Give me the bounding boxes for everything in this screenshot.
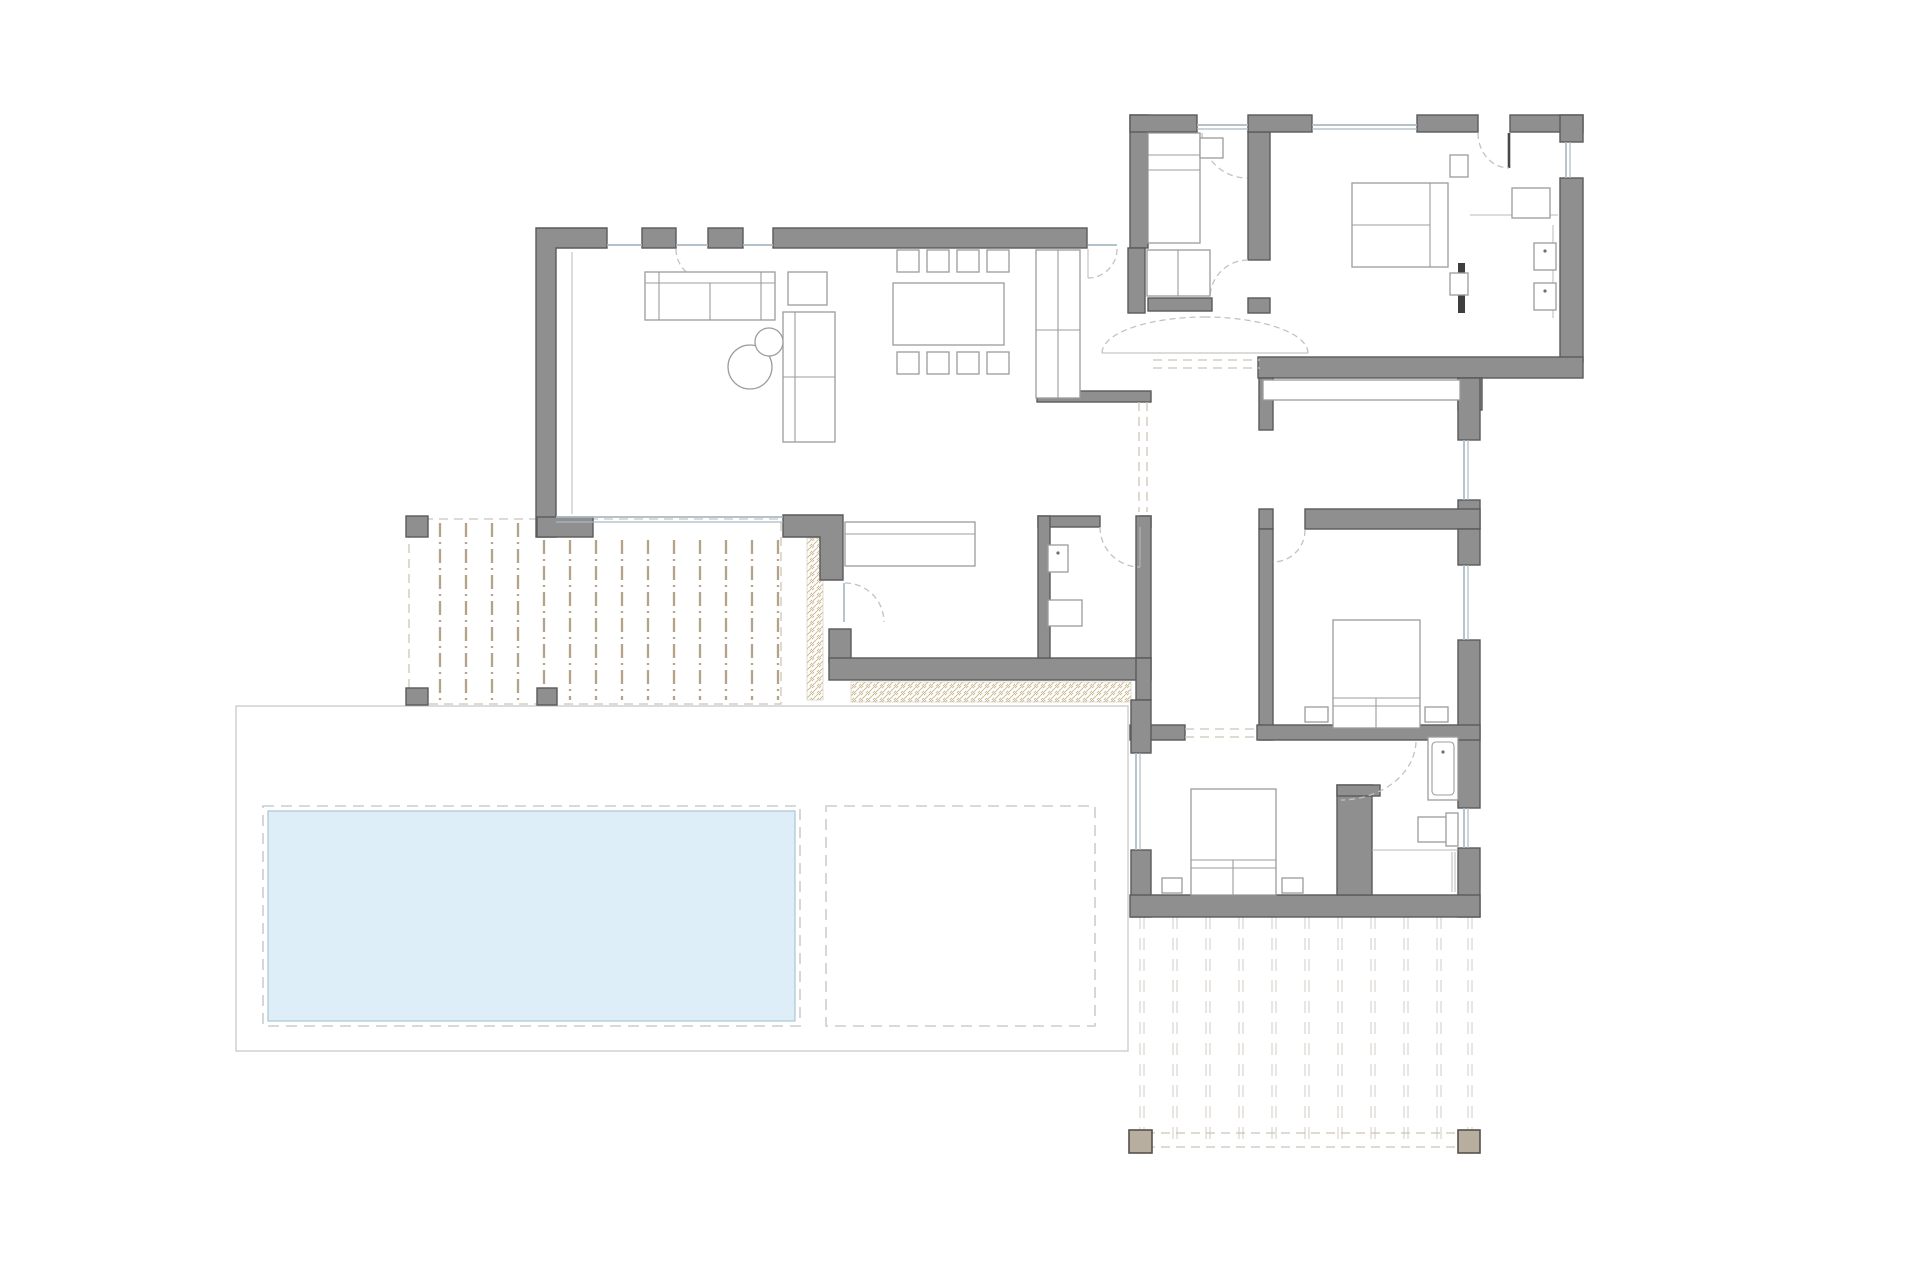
washbasin bbox=[1534, 283, 1556, 310]
wing-west-wall bbox=[1130, 115, 1148, 248]
east-wall bbox=[1458, 640, 1480, 808]
gravel-strip-horizontal bbox=[851, 682, 1131, 702]
shower-drain bbox=[1441, 750, 1444, 753]
nightstand bbox=[1425, 707, 1448, 722]
single-bed bbox=[1148, 133, 1200, 243]
wc-west-wall bbox=[1038, 516, 1050, 658]
deck-board-lines bbox=[440, 523, 778, 700]
nightstand bbox=[1282, 878, 1303, 893]
side-table bbox=[788, 272, 827, 305]
nightstand bbox=[1450, 273, 1468, 295]
wc-fixtures bbox=[1048, 545, 1082, 626]
bedroom2-door-swing bbox=[1273, 530, 1305, 562]
timber-post bbox=[1458, 1130, 1480, 1153]
east-wall bbox=[1458, 529, 1480, 565]
east-wall bbox=[1560, 115, 1583, 142]
nightstand bbox=[1162, 878, 1182, 893]
pergola-post bbox=[406, 688, 428, 705]
double-door-swing bbox=[1205, 317, 1308, 353]
wc-door-swing bbox=[1100, 527, 1140, 567]
pergola-post bbox=[537, 688, 557, 705]
bedroom2-west-wall bbox=[1259, 529, 1273, 740]
wall-segment bbox=[1136, 658, 1151, 700]
kitchen-counter bbox=[845, 522, 975, 566]
pergola-post bbox=[406, 516, 428, 537]
kitchen-south-wall bbox=[829, 658, 1151, 680]
double-door-swing bbox=[1102, 317, 1205, 353]
living-room-north-wall bbox=[773, 228, 1087, 248]
master-bedroom-furniture bbox=[1352, 155, 1558, 318]
bidet bbox=[1048, 600, 1082, 626]
wc-east-wall bbox=[1136, 516, 1151, 658]
nightstand bbox=[1305, 707, 1328, 722]
living-room-furniture bbox=[572, 250, 1080, 514]
bedroom1-south-wall bbox=[1148, 298, 1212, 311]
bedroom2-north-wall bbox=[1259, 509, 1273, 529]
bathroom-partition-wall bbox=[1337, 785, 1372, 895]
basin-drain bbox=[1056, 551, 1059, 554]
north-wall bbox=[1417, 115, 1478, 132]
nightstand bbox=[1450, 155, 1468, 177]
bedside-table bbox=[1200, 138, 1223, 158]
hall-west-wall bbox=[1128, 248, 1145, 313]
north-wall bbox=[1130, 115, 1197, 132]
wall-stub bbox=[537, 517, 593, 537]
basin-drain bbox=[1543, 249, 1546, 252]
deck-board-lines bbox=[1140, 917, 1472, 1148]
built-in-closet bbox=[1263, 380, 1460, 400]
basin-drain bbox=[1543, 289, 1546, 292]
shelf bbox=[1512, 188, 1550, 218]
east-wall bbox=[1560, 178, 1583, 362]
toilet-cistern bbox=[1446, 813, 1458, 846]
bedroom1-east-wall bbox=[1248, 132, 1270, 260]
swimming-pool bbox=[268, 811, 795, 1021]
toilet-bowl bbox=[1418, 817, 1448, 842]
bedroom2-north-wall bbox=[1305, 509, 1480, 529]
terrace-door-swing bbox=[845, 583, 884, 622]
washbasin bbox=[1534, 243, 1556, 270]
timber-post bbox=[1129, 1130, 1152, 1153]
wall-pier bbox=[642, 228, 676, 248]
door-swing bbox=[1210, 260, 1248, 298]
floor-plan-canvas bbox=[0, 0, 1920, 1280]
entry-door-swing bbox=[1478, 133, 1509, 168]
south-wall bbox=[1130, 895, 1480, 917]
master-south-wall bbox=[1258, 357, 1583, 378]
hall-furniture bbox=[1147, 250, 1210, 296]
bedroom1-east-wall bbox=[1248, 298, 1270, 313]
door-swing bbox=[1088, 249, 1117, 278]
wall-pier bbox=[708, 228, 743, 248]
west-wall bbox=[1131, 700, 1151, 753]
corridor-furniture bbox=[1263, 380, 1460, 400]
south-deck bbox=[1129, 917, 1480, 1153]
east-wall bbox=[1458, 378, 1480, 440]
bedroom2-furniture bbox=[1305, 620, 1448, 728]
washbasin bbox=[1048, 545, 1068, 572]
dining-table bbox=[893, 283, 1004, 345]
kitchen-furniture bbox=[845, 522, 975, 566]
pool-terrace bbox=[236, 706, 1128, 1051]
bedroom1-furniture bbox=[1148, 133, 1223, 243]
north-wall bbox=[1248, 115, 1312, 132]
kitchen-west-wall bbox=[829, 629, 851, 662]
floor-plan-drawing bbox=[0, 0, 1920, 1280]
bedroom3-furniture bbox=[1162, 789, 1303, 895]
bathroom-fixtures bbox=[1372, 737, 1458, 892]
round-side-table bbox=[755, 328, 783, 356]
